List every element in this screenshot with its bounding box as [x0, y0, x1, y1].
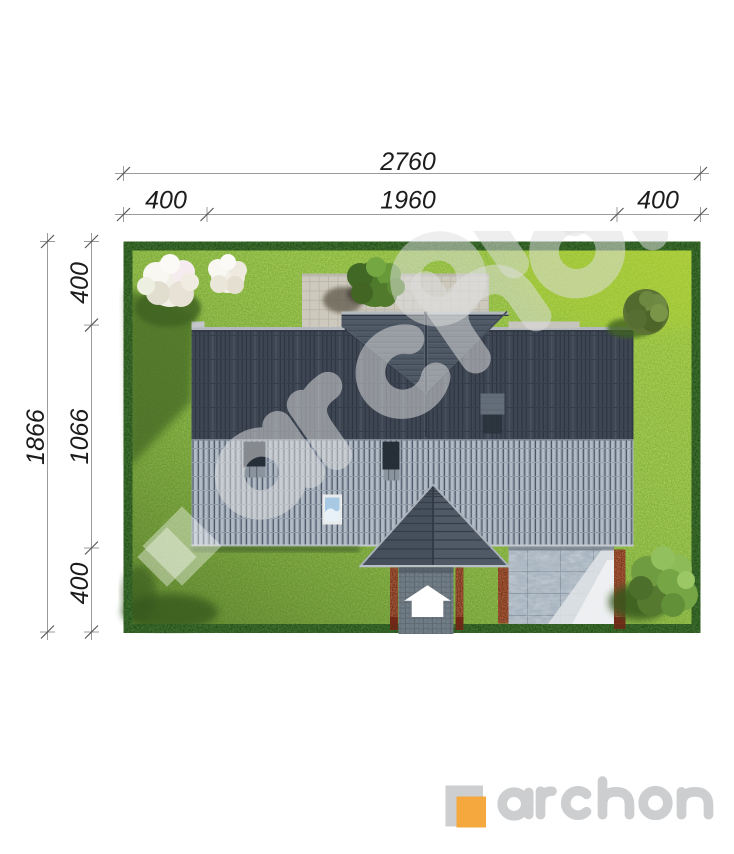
svg-text:400: 400	[66, 262, 94, 304]
svg-text:1066: 1066	[66, 409, 94, 465]
svg-text:2760: 2760	[379, 148, 436, 176]
svg-text:1866: 1866	[22, 409, 50, 465]
svg-text:400: 400	[637, 187, 679, 215]
svg-text:400: 400	[66, 563, 94, 605]
svg-text:400: 400	[145, 187, 187, 215]
svg-text:1960: 1960	[380, 187, 436, 215]
